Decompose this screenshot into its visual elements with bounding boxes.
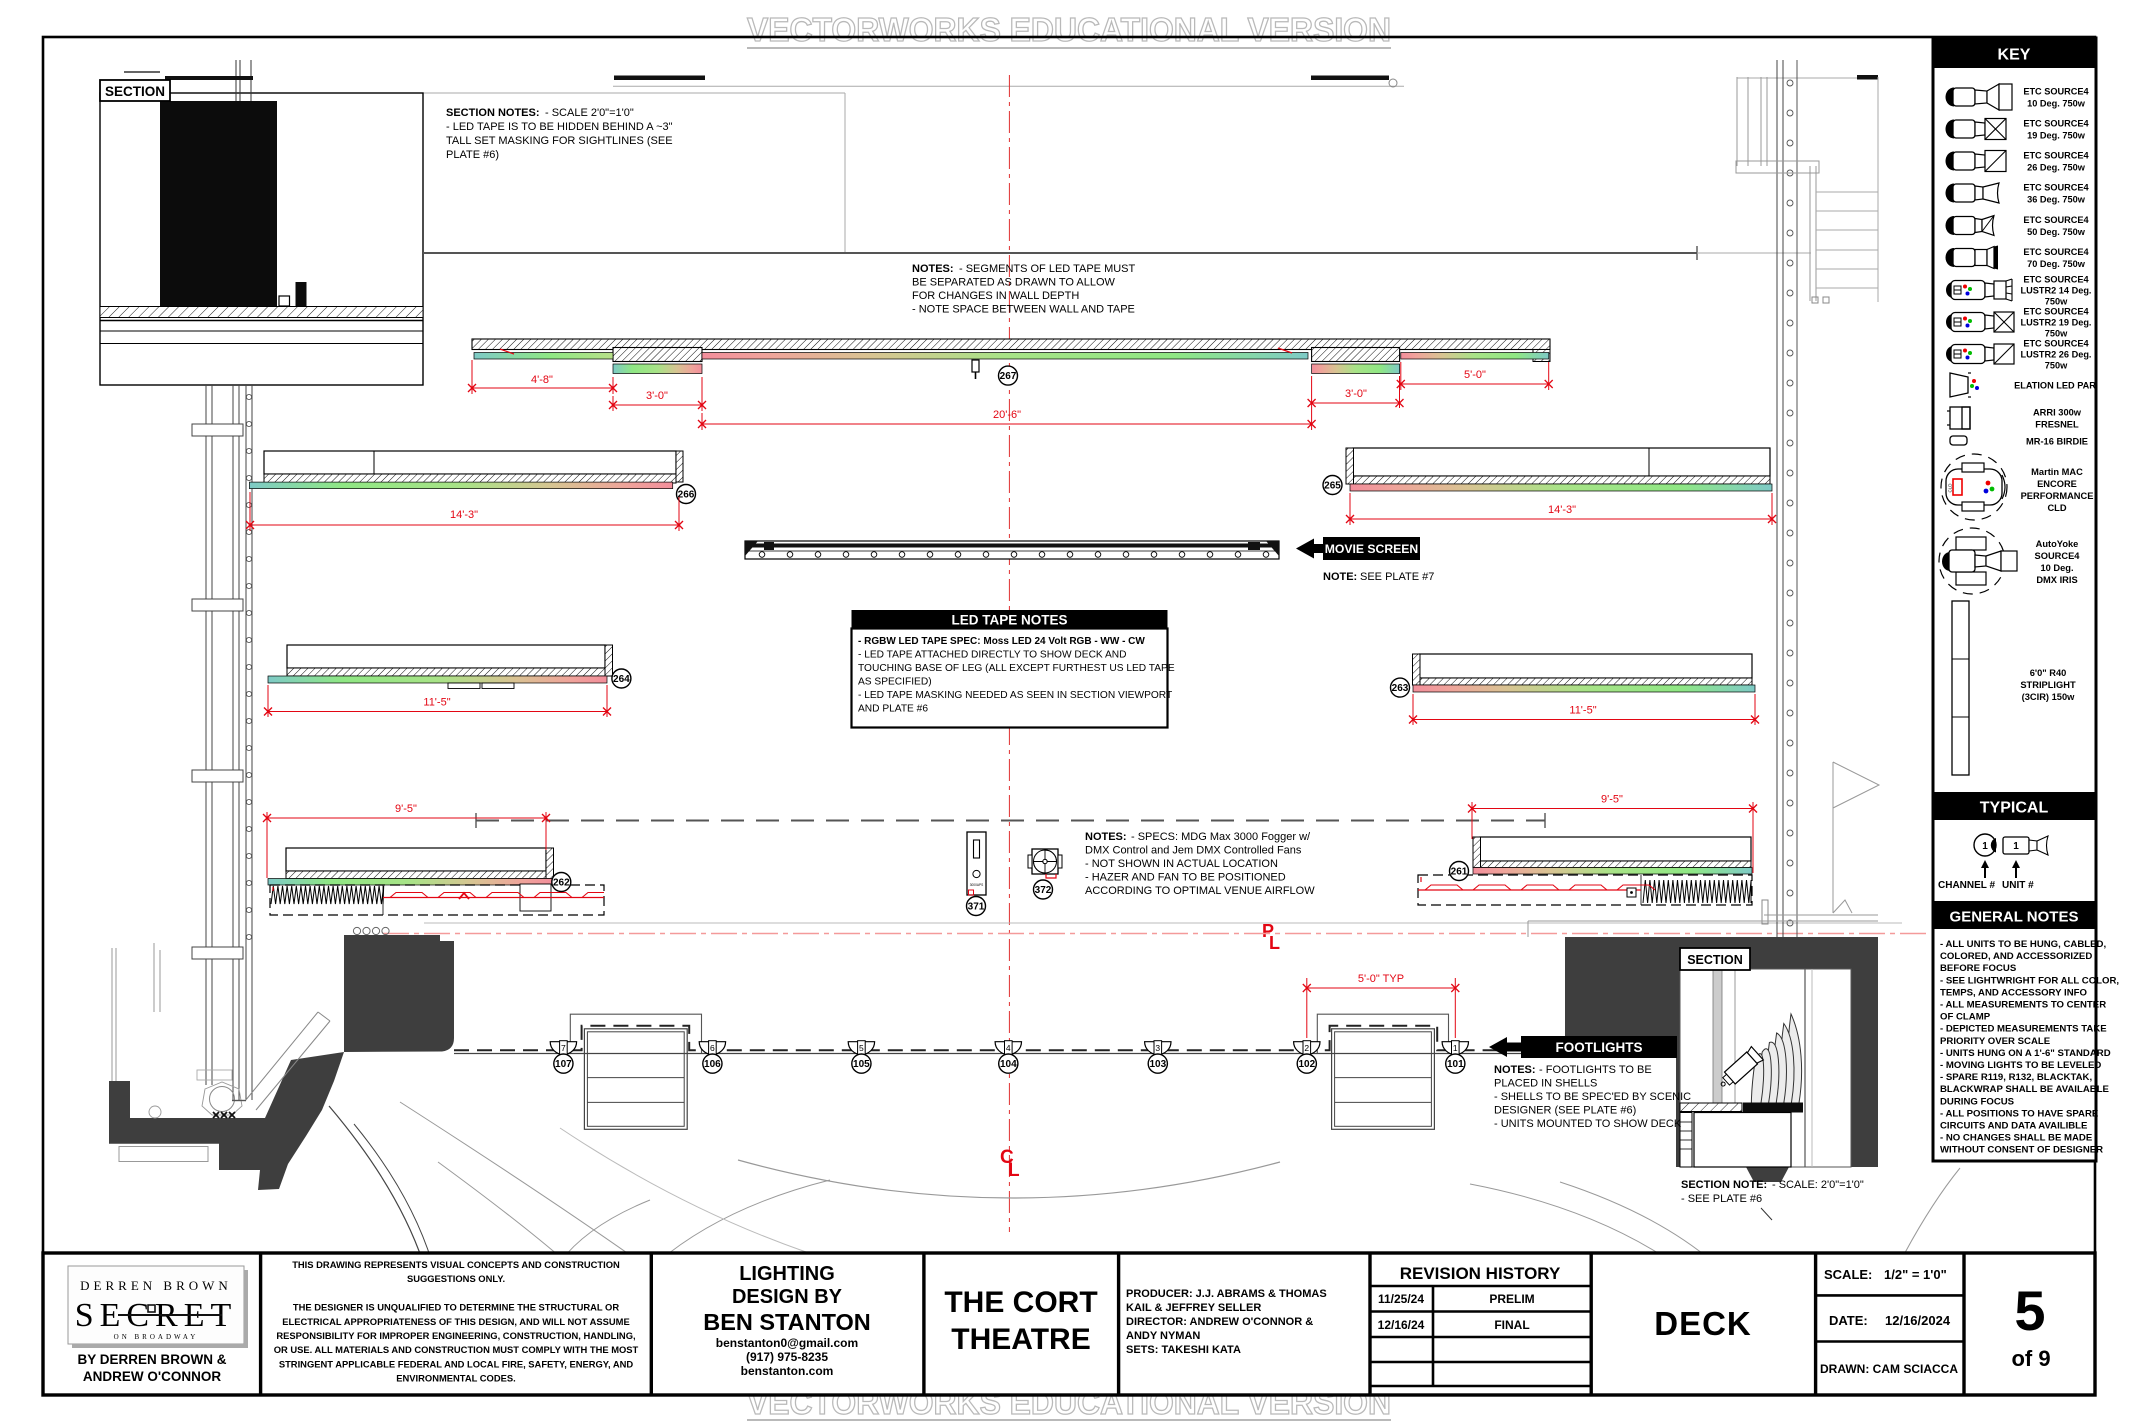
svg-text:ELATION LED PAR: ELATION LED PAR xyxy=(2014,381,2096,391)
svg-text:- DEPICTED MEASUREMENTS TAKE: - DEPICTED MEASUREMENTS TAKE xyxy=(1940,1024,2107,1035)
svg-text:AS SPECIFIED): AS SPECIFIED) xyxy=(858,677,932,688)
svg-text:263: 263 xyxy=(1392,683,1409,694)
svg-text:NOTES:: NOTES: xyxy=(1085,831,1127,843)
svg-text:BEFORE FOCUS: BEFORE FOCUS xyxy=(1940,963,2017,974)
svg-text:101: 101 xyxy=(1447,1059,1464,1070)
svg-text:6: 6 xyxy=(710,1043,715,1053)
svg-text:CLD: CLD xyxy=(2047,503,2066,513)
svg-text:- LED TAPE IS TO BE HIDDEN BEH: - LED TAPE IS TO BE HIDDEN BEHIND A ~3" xyxy=(446,121,673,133)
svg-text:PLACED IN SHELLS: PLACED IN SHELLS xyxy=(1494,1078,1597,1090)
svg-text:7: 7 xyxy=(561,1043,566,1053)
svg-text:GENERAL NOTES: GENERAL NOTES xyxy=(1950,909,2079,926)
svg-text:70 Deg. 750w: 70 Deg. 750w xyxy=(2027,259,2086,269)
svg-text:261: 261 xyxy=(1451,867,1468,878)
svg-text:CHANNEL #: CHANNEL # xyxy=(1938,880,1995,891)
svg-text:BY DERREN BROWN &: BY DERREN BROWN & xyxy=(77,1352,226,1367)
svg-text:6'0" R40: 6'0" R40 xyxy=(2030,668,2067,678)
svg-text:MR-16 BIRDIE: MR-16 BIRDIE xyxy=(2026,437,2088,447)
svg-text:9'-5": 9'-5" xyxy=(1601,794,1623,806)
svg-text:- FOOTLIGHTS TO BE: - FOOTLIGHTS TO BE xyxy=(1539,1064,1652,1076)
svg-text:14'-3": 14'-3" xyxy=(450,509,478,521)
svg-text:LED TAPE NOTES: LED TAPE NOTES xyxy=(951,613,1067,628)
svg-text:11'-5": 11'-5" xyxy=(423,697,450,709)
svg-text:(3CIR) 150w: (3CIR) 150w xyxy=(2022,692,2075,702)
svg-text:ACCORDING TO OPTIMAL VENUE AIR: ACCORDING TO OPTIMAL VENUE AIRFLOW xyxy=(1085,885,1315,897)
svg-text:1: 1 xyxy=(1453,1043,1458,1053)
svg-text:ETC SOURCE4: ETC SOURCE4 xyxy=(2023,247,2089,257)
svg-text:FINAL: FINAL xyxy=(1494,1318,1529,1332)
svg-text:LIGHTING: LIGHTING xyxy=(739,1263,835,1285)
svg-text:- UNITS HUNG ON A 1'-6" STANDA: - UNITS HUNG ON A 1'-6" STANDARD xyxy=(1940,1048,2111,1059)
svg-text:LUSTR2 14 Deg.: LUSTR2 14 Deg. xyxy=(2021,286,2092,296)
svg-text:750w: 750w xyxy=(2045,329,2068,339)
svg-text:SECTION: SECTION xyxy=(105,84,165,99)
svg-text:MOVIE SCREEN: MOVIE SCREEN xyxy=(1325,542,1418,556)
svg-text:266: 266 xyxy=(678,490,695,501)
svg-text:5'-0" TYP: 5'-0" TYP xyxy=(1358,973,1404,985)
svg-text:NOTE:: NOTE: xyxy=(1323,571,1357,583)
svg-text:BEN STANTON: BEN STANTON xyxy=(703,1309,871,1335)
svg-text:PERFORMANCE: PERFORMANCE xyxy=(2021,491,2094,501)
svg-text:BE SEPARATED AS DRAWN TO ALLOW: BE SEPARATED AS DRAWN TO ALLOW xyxy=(912,277,1116,289)
svg-text:VECTORWORKS EDUCATIONAL VERSIO: VECTORWORKS EDUCATIONAL VERSION xyxy=(747,11,1391,48)
svg-text:1/2" = 1'0": 1/2" = 1'0" xyxy=(1884,1267,1947,1282)
svg-text:3'-0": 3'-0" xyxy=(646,390,668,402)
svg-text:TALL SET MASKING FOR SIGHTLINE: TALL SET MASKING FOR SIGHTLINES (SEE xyxy=(446,135,673,147)
svg-text:371: 371 xyxy=(968,902,985,913)
svg-text:OF CLAMP: OF CLAMP xyxy=(1940,1012,1991,1023)
svg-text:- SEGMENTS OF LED TAPE MUST: - SEGMENTS OF LED TAPE MUST xyxy=(959,263,1136,275)
svg-text:FOOTLIGHTS: FOOTLIGHTS xyxy=(1556,1040,1643,1055)
svg-text:DERREN BROWN: DERREN BROWN xyxy=(80,1278,232,1293)
svg-text:PRODUCER: J.J. ABRAMS & THOMAS: PRODUCER: J.J. ABRAMS & THOMAS xyxy=(1126,1288,1327,1300)
svg-text:REVISION HISTORY: REVISION HISTORY xyxy=(1400,1264,1561,1283)
svg-text:5: 5 xyxy=(859,1043,864,1053)
svg-text:LUSTR2 26 Deg.: LUSTR2 26 Deg. xyxy=(2021,350,2092,360)
svg-text:- NO CHANGES SHALL BE MADE: - NO CHANGES SHALL BE MADE xyxy=(1940,1133,2093,1144)
svg-text:SUGGESTIONS ONLY.: SUGGESTIONS ONLY. xyxy=(407,1273,505,1284)
svg-text:1: 1 xyxy=(1982,841,1988,852)
svg-text:SETS: TAKESHI KATA: SETS: TAKESHI KATA xyxy=(1126,1344,1241,1356)
svg-text:36 Deg. 750w: 36 Deg. 750w xyxy=(2027,195,2086,205)
svg-text:264: 264 xyxy=(613,674,630,685)
svg-text:DMX IRIS: DMX IRIS xyxy=(2036,575,2077,585)
svg-text:5: 5 xyxy=(2014,1279,2045,1342)
svg-text:PLATE #6): PLATE #6) xyxy=(446,149,499,161)
svg-text:- NOT SHOWN IN ACTUAL LOCATION: - NOT SHOWN IN ACTUAL LOCATION xyxy=(1085,858,1278,870)
svg-text:THIS DRAWING REPRESENTS VISUAL: THIS DRAWING REPRESENTS VISUAL CONCEPTS … xyxy=(292,1259,620,1270)
svg-text:- LED TAPE ATTACHED DIRECTLY T: - LED TAPE ATTACHED DIRECTLY TO SHOW DEC… xyxy=(858,650,1127,661)
svg-text:DECK: DECK xyxy=(1654,1305,1752,1342)
svg-text:- LED TAPE MASKING NEEDED AS S: - LED TAPE MASKING NEEDED AS SEEN IN SEC… xyxy=(858,690,1172,701)
svg-text:107: 107 xyxy=(555,1059,572,1070)
svg-text:STRINGENT APPLICABLE FEDERAL A: STRINGENT APPLICABLE FEDERAL AND LOCAL F… xyxy=(279,1358,634,1369)
svg-text:1: 1 xyxy=(2013,841,2019,852)
svg-text:267: 267 xyxy=(1000,371,1017,382)
svg-text:DESIGNER (SEE PLATE #6): DESIGNER (SEE PLATE #6) xyxy=(1494,1105,1636,1117)
svg-text:12/16/24: 12/16/24 xyxy=(1378,1318,1425,1332)
svg-text:265: 265 xyxy=(1324,481,1341,492)
svg-text:750w: 750w xyxy=(2045,361,2068,371)
svg-text:14'-3": 14'-3" xyxy=(1548,504,1576,516)
svg-text:- SCALE 2'0"=1'0": - SCALE 2'0"=1'0" xyxy=(545,107,634,119)
svg-text:STRIPLIGHT: STRIPLIGHT xyxy=(2020,680,2076,690)
svg-text:11/25/24: 11/25/24 xyxy=(1378,1292,1424,1306)
svg-text:26 Deg. 750w: 26 Deg. 750w xyxy=(2027,163,2086,173)
svg-text:- MOVING LIGHTS TO BE LEVELED: - MOVING LIGHTS TO BE LEVELED xyxy=(1940,1060,2101,1071)
svg-text:ETC SOURCE4: ETC SOURCE4 xyxy=(2023,119,2089,129)
svg-text:SECTION NOTE:: SECTION NOTE: xyxy=(1681,1179,1767,1191)
svg-text:ANDREW O'CONNOR: ANDREW O'CONNOR xyxy=(83,1369,221,1384)
svg-text:3'-0": 3'-0" xyxy=(1345,388,1367,400)
svg-text:262: 262 xyxy=(553,878,570,889)
svg-text:ENVIRONMENTAL CODES.: ENVIRONMENTAL CODES. xyxy=(396,1373,515,1384)
svg-text:9'-5": 9'-5" xyxy=(395,803,417,815)
svg-text:NOTES:: NOTES: xyxy=(912,263,954,275)
svg-text:- SHELLS TO BE SPEC'ED BY SCEN: - SHELLS TO BE SPEC'ED BY SCENIC xyxy=(1494,1091,1691,1103)
svg-text:4: 4 xyxy=(1006,1043,1011,1053)
svg-text:- ALL MEASUREMENTS TO CENTER: - ALL MEASUREMENTS TO CENTER xyxy=(1940,1000,2106,1011)
svg-text:DMX Control and Jem DMX Contro: DMX Control and Jem DMX Controlled Fans xyxy=(1085,845,1302,857)
svg-text:DRAWN: CAM SCIACCA: DRAWN: CAM SCIACCA xyxy=(1820,1362,1958,1376)
svg-text:ON BROADWAY: ON BROADWAY xyxy=(114,1333,199,1341)
svg-text:- SPECS: MDG Max 3000 Fogger w: - SPECS: MDG Max 3000 Fogger w/ xyxy=(1131,831,1311,843)
svg-text:750w: 750w xyxy=(2045,297,2068,307)
svg-text:11'-5": 11'-5" xyxy=(1569,705,1596,717)
svg-text:NOTES:: NOTES: xyxy=(1494,1064,1536,1076)
svg-text:L: L xyxy=(1008,1160,1020,1181)
svg-text:3: 3 xyxy=(1155,1043,1160,1053)
svg-text:DATE:: DATE: xyxy=(1829,1313,1868,1328)
svg-text:(917) 975-8235: (917) 975-8235 xyxy=(746,1350,828,1364)
svg-text:of 9: of 9 xyxy=(2011,1346,2050,1371)
svg-text:DIRECTOR: ANDREW O'CONNOR &: DIRECTOR: ANDREW O'CONNOR & xyxy=(1126,1316,1313,1328)
svg-text:AutoYoke: AutoYoke xyxy=(2036,539,2079,549)
svg-text:benstanton.com: benstanton.com xyxy=(741,1364,834,1378)
svg-text:SECTION: SECTION xyxy=(1687,953,1743,967)
svg-text:5'-0": 5'-0" xyxy=(1464,369,1486,381)
svg-text:10 Deg.: 10 Deg. xyxy=(2040,563,2073,573)
svg-text:FOR CHANGES IN WALL DEPTH: FOR CHANGES IN WALL DEPTH xyxy=(912,290,1079,302)
svg-text:105: 105 xyxy=(853,1059,870,1070)
svg-text:COLORED, AND ACCESSORIZED: COLORED, AND ACCESSORIZED xyxy=(1940,951,2092,962)
svg-text:TOUCHING BASE OF LEG (ALL EXCE: TOUCHING BASE OF LEG (ALL EXCEPT FURTHES… xyxy=(858,663,1175,674)
svg-text:BLACKWRAP SHALL BE AVAILABLE: BLACKWRAP SHALL BE AVAILABLE xyxy=(1940,1084,2110,1095)
svg-text:ANDY NYMAN: ANDY NYMAN xyxy=(1126,1330,1200,1342)
svg-text:12/16/2024: 12/16/2024 xyxy=(1885,1313,1951,1328)
svg-text:372: 372 xyxy=(1035,885,1052,896)
svg-text:102: 102 xyxy=(1298,1059,1315,1070)
svg-text:ARRI 300w: ARRI 300w xyxy=(2033,408,2082,418)
svg-text:TYPICAL: TYPICAL xyxy=(1980,800,2049,817)
svg-text:ETC SOURCE4: ETC SOURCE4 xyxy=(2023,151,2089,161)
svg-text:RESPONSIBILITY FOR IMPROPER EN: RESPONSIBILITY FOR IMPROPER ENGINEERING,… xyxy=(276,1330,635,1341)
svg-text:PRIORITY OVER SCALE: PRIORITY OVER SCALE xyxy=(1940,1036,2051,1047)
svg-text:LUSTR2 19 Deg.: LUSTR2 19 Deg. xyxy=(2021,318,2092,328)
svg-text:SCALE:: SCALE: xyxy=(1824,1267,1872,1282)
svg-text:ELECTRICAL APPROPRIATENESS OF: ELECTRICAL APPROPRIATENESS OF THIS DESIG… xyxy=(282,1316,629,1327)
svg-text:PRELIM: PRELIM xyxy=(1489,1292,1534,1306)
svg-text:AND PLATE #6: AND PLATE #6 xyxy=(858,704,928,715)
svg-text:ENCORE: ENCORE xyxy=(2037,479,2077,489)
svg-text:WITHOUT CONSENT OF DESIGNER: WITHOUT CONSENT OF DESIGNER xyxy=(1940,1145,2103,1156)
svg-text:104: 104 xyxy=(1000,1059,1017,1070)
svg-text:- ALL POSITIONS TO HAVE SPARE: - ALL POSITIONS TO HAVE SPARE xyxy=(1940,1108,2099,1119)
svg-text:KEY: KEY xyxy=(1998,47,2031,64)
svg-text:103: 103 xyxy=(1149,1059,1166,1070)
svg-text:50 Deg. 750w: 50 Deg. 750w xyxy=(2027,227,2086,237)
svg-text:- RGBW LED TAPE SPEC: Moss LED: - RGBW LED TAPE SPEC: Moss LED 24 Volt R… xyxy=(858,636,1145,647)
svg-text:ETC SOURCE4: ETC SOURCE4 xyxy=(2023,215,2089,225)
svg-text:ETC SOURCE4: ETC SOURCE4 xyxy=(2023,183,2089,193)
svg-text:DESIGN BY: DESIGN BY xyxy=(732,1286,843,1308)
svg-text:3000APS: 3000APS xyxy=(970,883,983,887)
svg-text:CLD: CLD xyxy=(1948,483,1953,493)
svg-text:THE CORT: THE CORT xyxy=(944,1286,1097,1319)
svg-text:THE DESIGNER IS UNQUALIFIED TO: THE DESIGNER IS UNQUALIFIED TO DETERMINE… xyxy=(293,1302,619,1313)
svg-text:SOURCE4: SOURCE4 xyxy=(2035,551,2081,561)
svg-text:ETC SOURCE4: ETC SOURCE4 xyxy=(2023,307,2089,317)
svg-text:SECTION NOTES:: SECTION NOTES: xyxy=(446,107,540,119)
svg-text:Martin MAC: Martin MAC xyxy=(2031,467,2083,477)
svg-text:- SPARE R119, R132, BLACKTAK,: - SPARE R119, R132, BLACKTAK, xyxy=(1940,1072,2092,1083)
svg-text:20'-6": 20'-6" xyxy=(993,409,1021,421)
svg-text:KAIL & JEFFREY SELLER: KAIL & JEFFREY SELLER xyxy=(1126,1302,1261,1314)
svg-text:OR USE. ALL MATERIALS AND CONS: OR USE. ALL MATERIALS AND CONSTRUCTION M… xyxy=(274,1344,639,1355)
svg-text:L: L xyxy=(1269,933,1280,953)
svg-text:106: 106 xyxy=(704,1059,721,1070)
svg-text:10 Deg. 750w: 10 Deg. 750w xyxy=(2027,99,2086,109)
svg-text:- ALL UNITS TO BE HUNG, CABLED: - ALL UNITS TO BE HUNG, CABLED, xyxy=(1940,939,2106,950)
svg-text:UNIT #: UNIT # xyxy=(2002,880,2034,891)
svg-text:- SEE PLATE #6: - SEE PLATE #6 xyxy=(1681,1193,1762,1205)
svg-text:2: 2 xyxy=(1304,1043,1309,1053)
svg-text:DURING FOCUS: DURING FOCUS xyxy=(1940,1096,2015,1107)
svg-text:THEATRE: THEATRE xyxy=(951,1323,1090,1356)
svg-text:SEE PLATE #7: SEE PLATE #7 xyxy=(1360,571,1434,583)
svg-text:ETC SOURCE4: ETC SOURCE4 xyxy=(2023,339,2089,349)
svg-text:19 Deg. 750w: 19 Deg. 750w xyxy=(2027,131,2086,141)
svg-text:- SCALE: 2'0"=1'0": - SCALE: 2'0"=1'0" xyxy=(1772,1179,1864,1191)
svg-text:4'-8": 4'-8" xyxy=(531,374,553,386)
svg-text:- UNITS MOUNTED TO SHOW DECK: - UNITS MOUNTED TO SHOW DECK xyxy=(1494,1118,1682,1130)
svg-text:ETC SOURCE4: ETC SOURCE4 xyxy=(2023,87,2089,97)
svg-text:FRESNEL: FRESNEL xyxy=(2035,420,2079,430)
svg-text:CIRCUITS AND DATA AVAILIBLE: CIRCUITS AND DATA AVAILIBLE xyxy=(1940,1121,2088,1132)
svg-text:- NOTE SPACE BETWEEN WALL AND: - NOTE SPACE BETWEEN WALL AND TAPE xyxy=(912,304,1135,316)
svg-text:ETC SOURCE4: ETC SOURCE4 xyxy=(2023,275,2089,285)
svg-text:- SEE LIGHTWRIGHT FOR ALL COLO: - SEE LIGHTWRIGHT FOR ALL COLOR, xyxy=(1940,975,2119,986)
svg-text:benstanton0@gmail.com: benstanton0@gmail.com xyxy=(716,1336,858,1350)
svg-text:TEMPS, AND ACCESSORY INFO: TEMPS, AND ACCESSORY INFO xyxy=(1940,987,2087,998)
svg-text:- HAZER AND FAN TO BE POSITION: - HAZER AND FAN TO BE POSITIONED xyxy=(1085,872,1286,884)
